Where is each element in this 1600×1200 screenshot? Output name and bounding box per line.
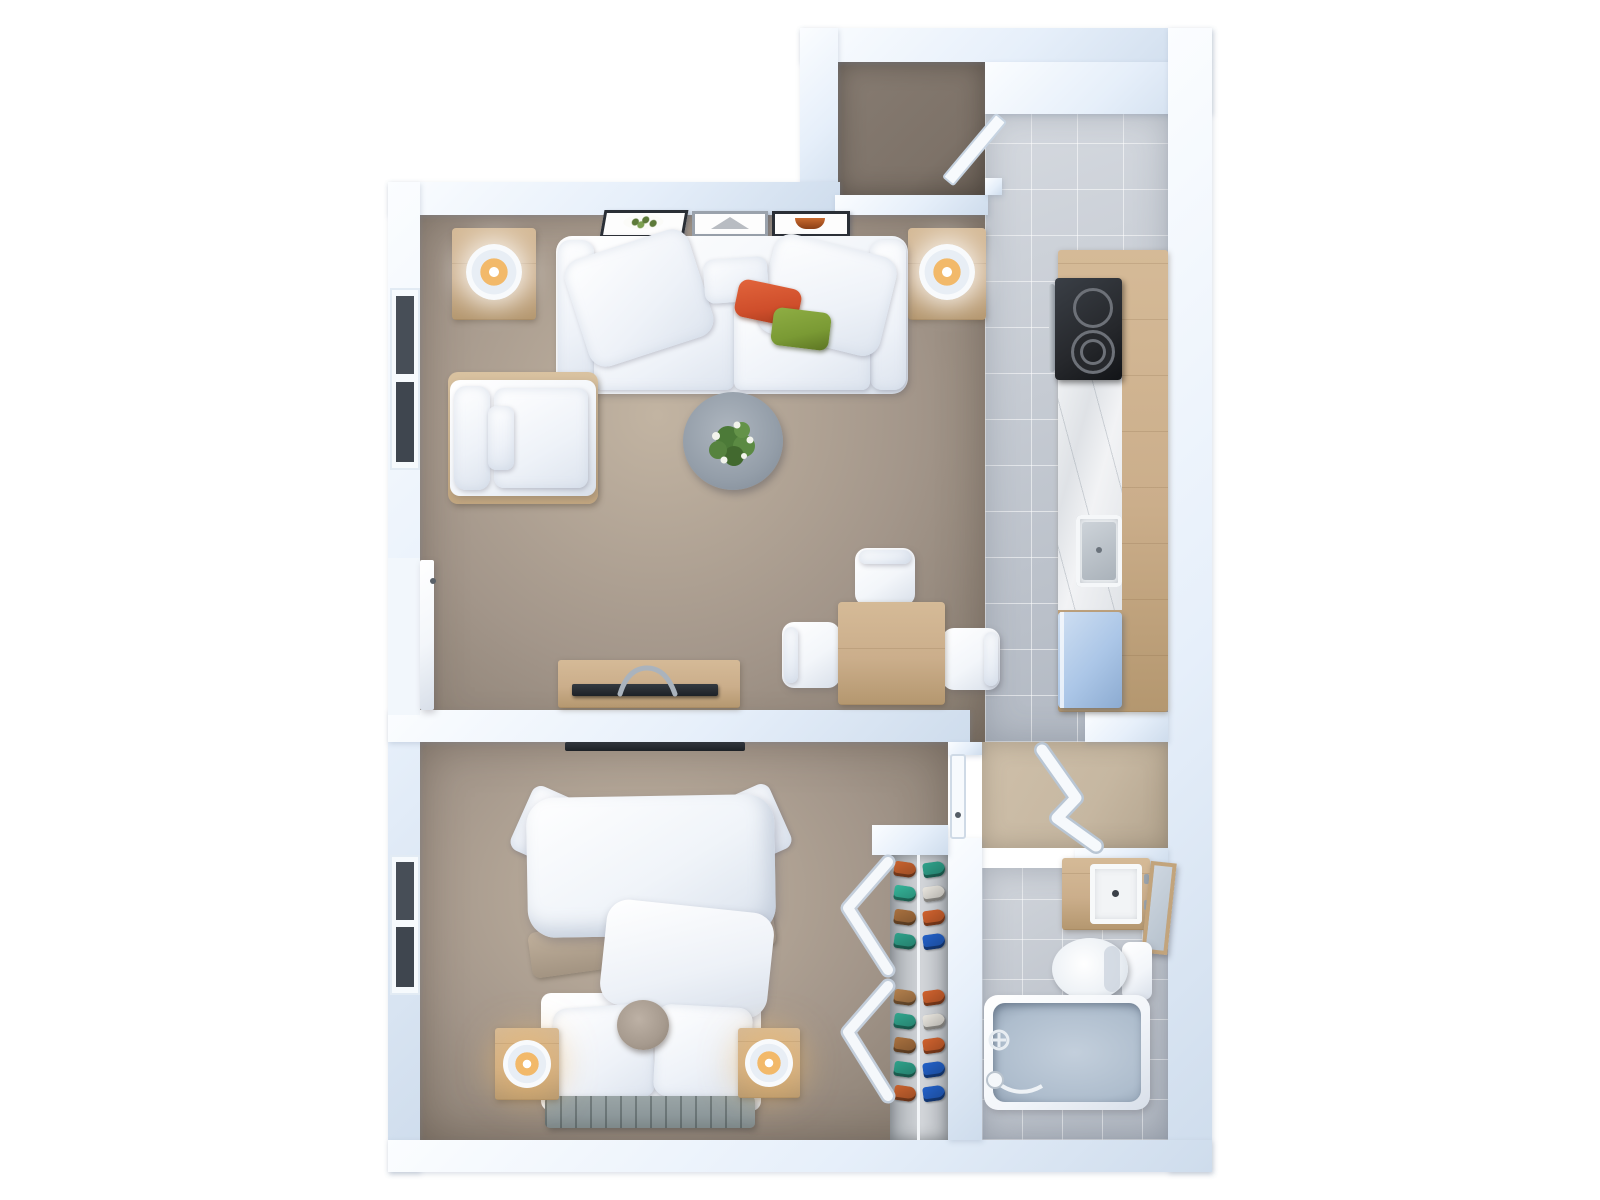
tv-stand-handle [620, 668, 675, 694]
accordion-door [1042, 750, 1096, 846]
floor-plan-render [0, 0, 1600, 1200]
bifold-closet-doors [848, 862, 888, 1096]
bedroom-door [951, 755, 965, 838]
potted-plant [709, 422, 755, 467]
front-door [943, 114, 1006, 185]
door-handle [955, 812, 961, 818]
detail-overlay [0, 0, 1600, 1200]
tub-faucet [990, 1031, 1008, 1049]
hand-shower [987, 1072, 1042, 1092]
